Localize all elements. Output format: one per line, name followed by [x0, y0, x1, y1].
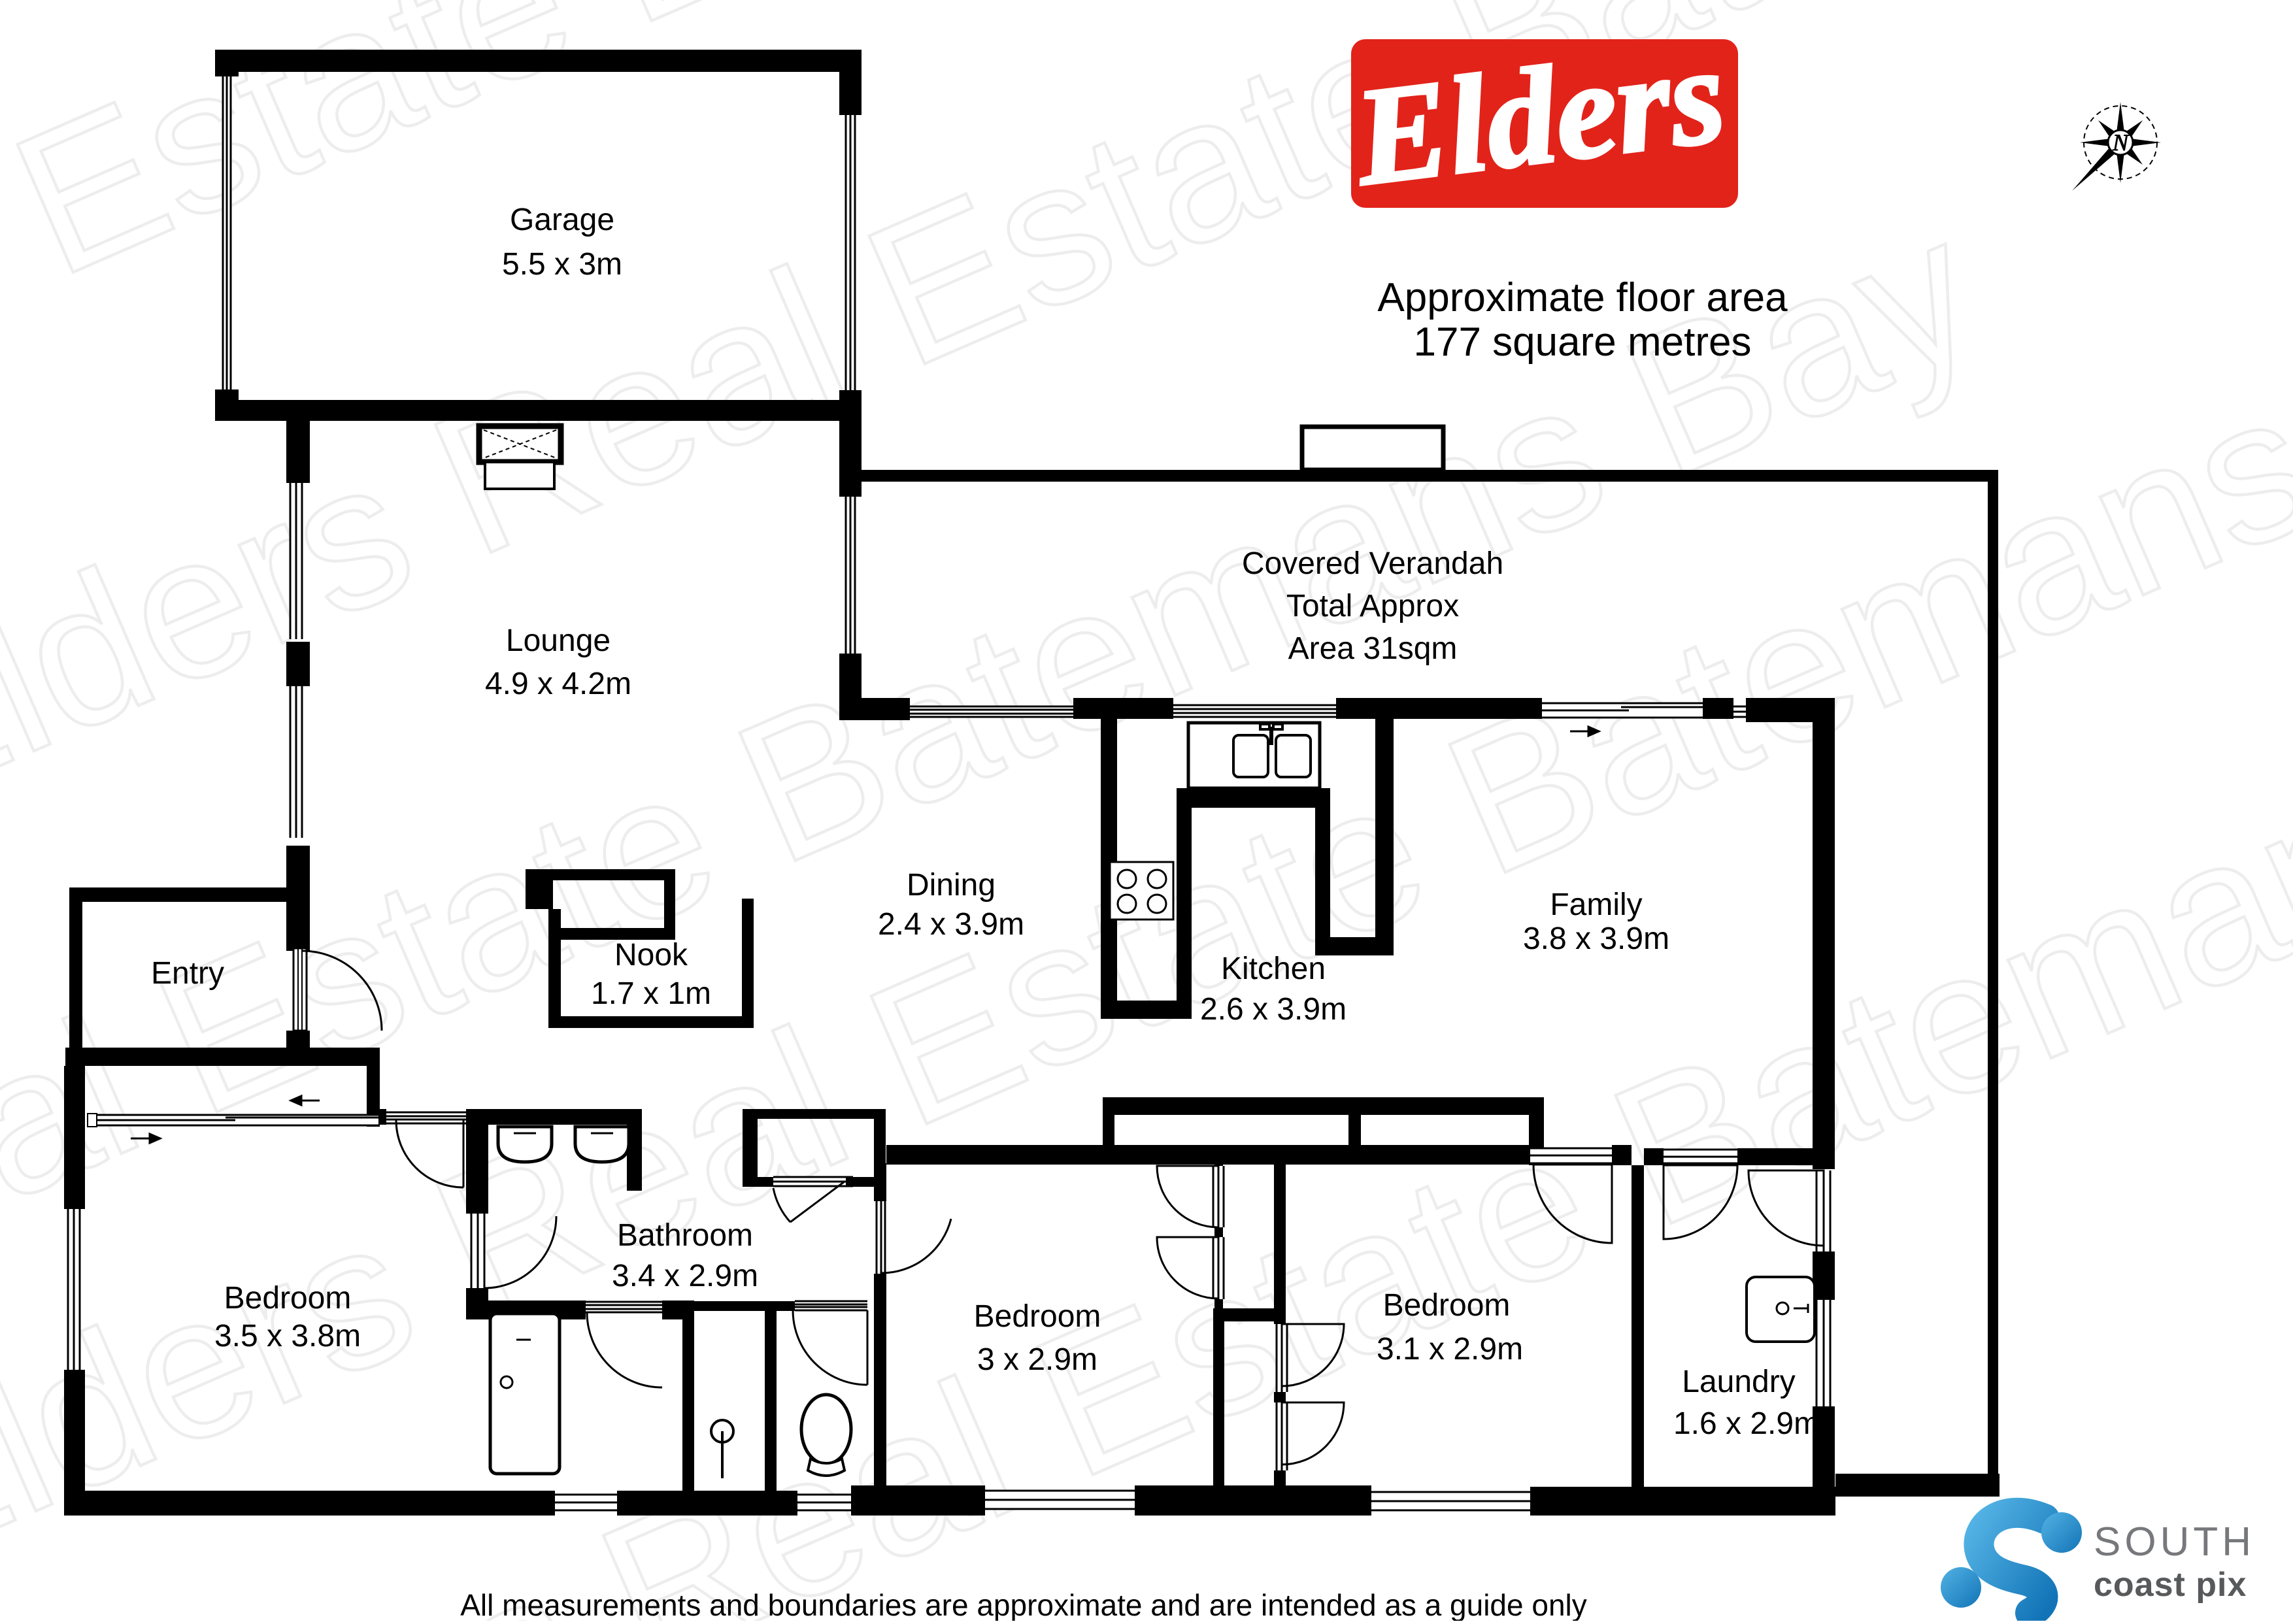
svg-text:coast pix: coast pix — [2094, 1566, 2247, 1604]
svg-text:Kitchen: Kitchen — [1221, 952, 1326, 986]
svg-text:2.6 x 3.9m: 2.6 x 3.9m — [1200, 992, 1347, 1027]
svg-text:Lounge: Lounge — [506, 623, 611, 658]
svg-text:177 square metres: 177 square metres — [1414, 320, 1752, 365]
svg-text:1.6 x 2.9m: 1.6 x 2.9m — [1673, 1406, 1820, 1441]
svg-text:3.5 x 3.8m: 3.5 x 3.8m — [214, 1319, 361, 1353]
svg-text:Nook: Nook — [614, 938, 688, 972]
svg-text:Bathroom: Bathroom — [617, 1218, 753, 1253]
svg-text:Bedroom: Bedroom — [1383, 1288, 1511, 1323]
svg-text:5.5 x 3m: 5.5 x 3m — [502, 247, 622, 282]
svg-text:3.8 x 3.9m: 3.8 x 3.9m — [1523, 921, 1669, 956]
svg-text:Bedroom: Bedroom — [974, 1299, 1101, 1334]
svg-text:Garage: Garage — [510, 203, 614, 237]
svg-text:3.4 x 2.9m: 3.4 x 2.9m — [612, 1259, 758, 1293]
svg-text:3.1 x 2.9m: 3.1 x 2.9m — [1377, 1332, 1523, 1367]
svg-text:All measurements and boundarie: All measurements and boundaries are appr… — [460, 1588, 1587, 1621]
svg-text:Total Approx: Total Approx — [1286, 589, 1459, 623]
svg-text:3 x 2.9m: 3 x 2.9m — [977, 1342, 1097, 1377]
svg-text:Bedroom: Bedroom — [224, 1281, 352, 1316]
svg-text:Dining: Dining — [907, 868, 996, 903]
svg-text:SOUTH: SOUTH — [2094, 1519, 2255, 1565]
svg-text:Area 31sqm: Area 31sqm — [1288, 631, 1458, 666]
svg-text:Family: Family — [1550, 887, 1642, 922]
svg-text:Covered Verandah: Covered Verandah — [1242, 546, 1503, 581]
svg-text:1.7 x 1m: 1.7 x 1m — [591, 976, 711, 1011]
svg-text:Laundry: Laundry — [1682, 1365, 1795, 1399]
svg-text:N: N — [2112, 129, 2130, 156]
svg-text:Approximate floor area: Approximate floor area — [1377, 275, 1788, 320]
svg-text:4.9 x 4.2m: 4.9 x 4.2m — [485, 667, 631, 701]
svg-text:Entry: Entry — [151, 956, 224, 991]
svg-text:2.4 x 3.9m: 2.4 x 3.9m — [878, 907, 1024, 942]
